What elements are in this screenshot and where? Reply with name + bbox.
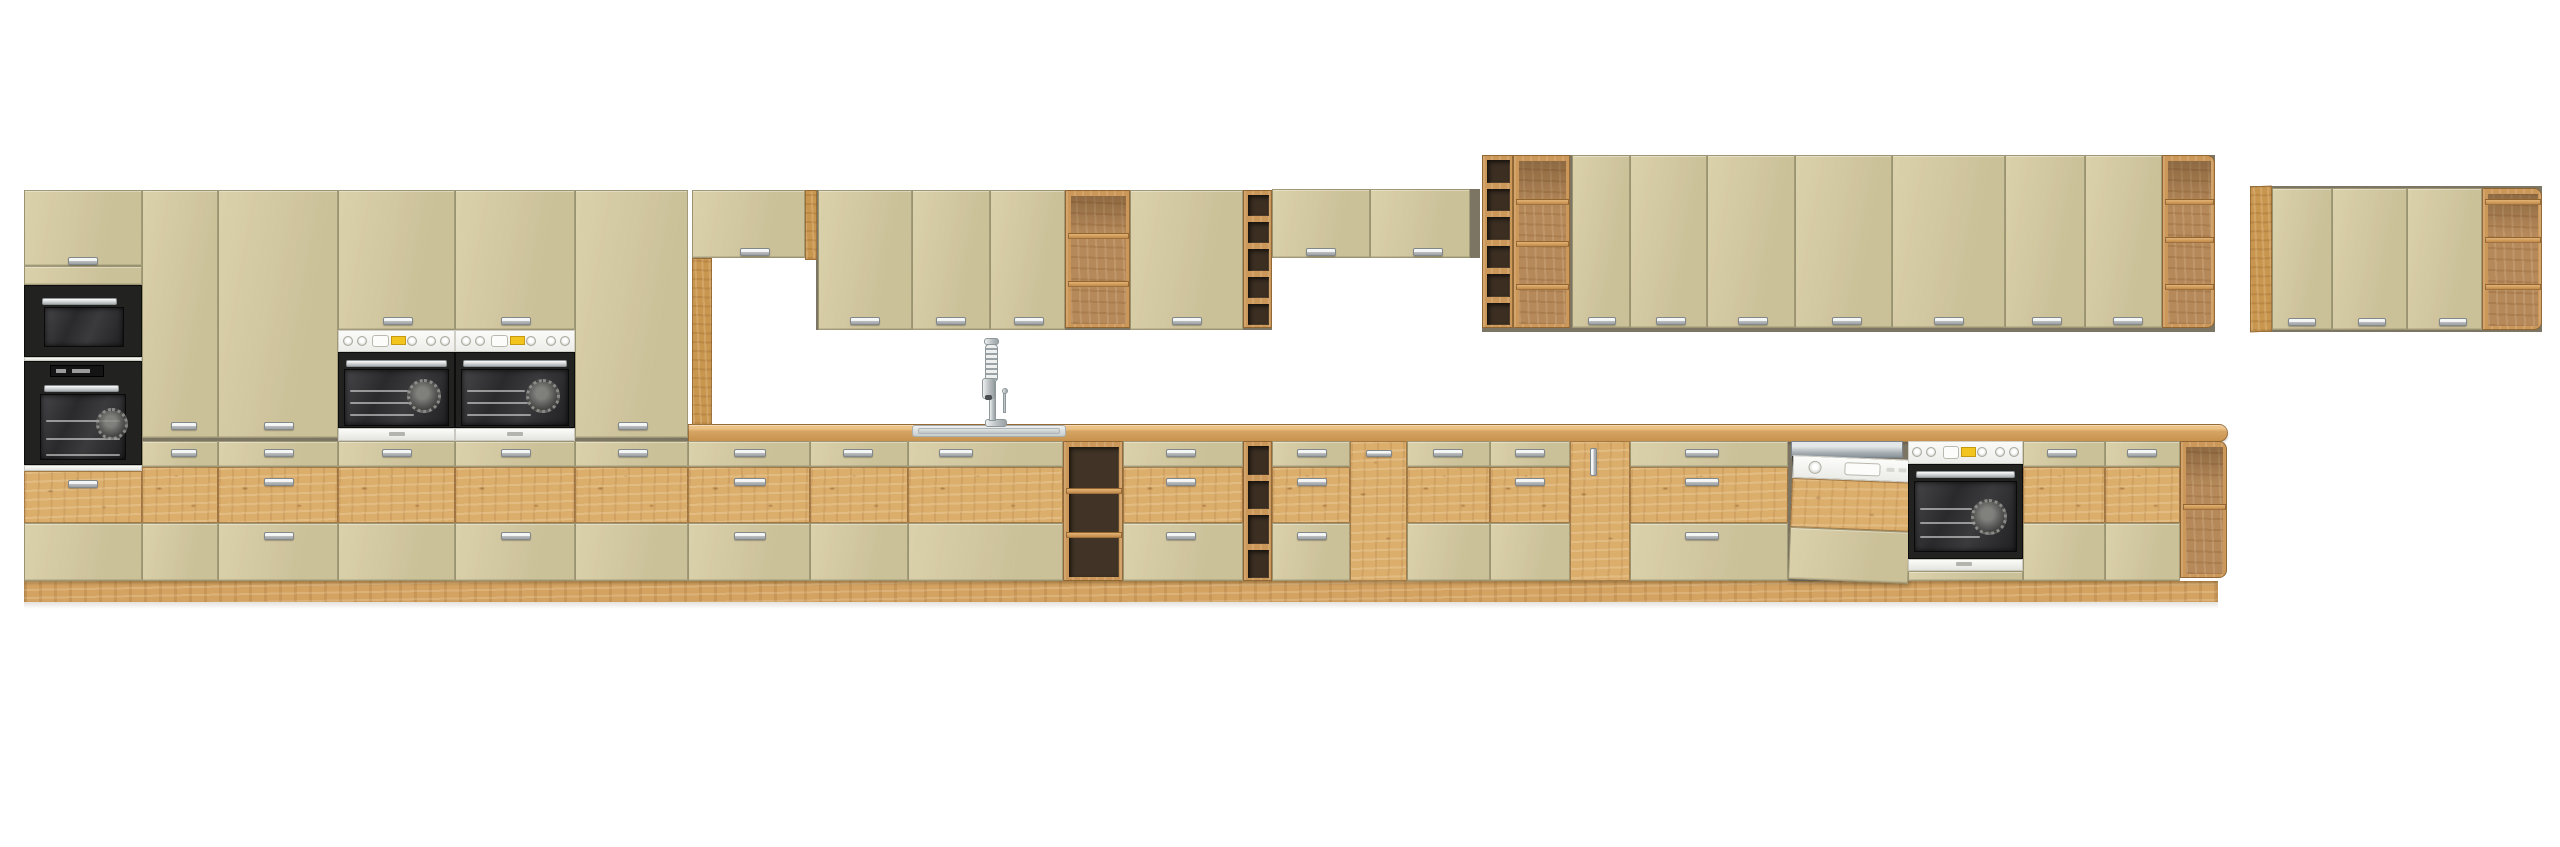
kitchen-cabinet-set-render <box>0 0 2560 847</box>
sink-and-faucet <box>0 0 2560 847</box>
faucet-top-cap <box>984 338 999 345</box>
faucet-spring-coil <box>985 344 998 382</box>
faucet-lever <box>1003 393 1006 413</box>
faucet-nozzle-tip <box>985 395 992 400</box>
faucet-lever-knob <box>1002 388 1008 394</box>
sink-bowl-line <box>918 428 1060 434</box>
